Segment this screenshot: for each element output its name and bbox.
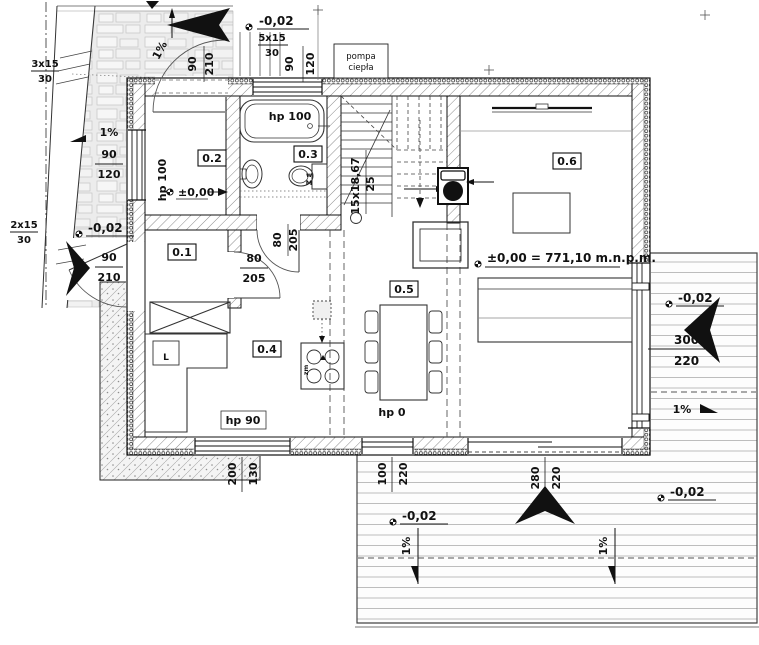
sill-dining: hp 0 xyxy=(378,406,406,419)
steps-left-height: 30 xyxy=(17,235,31,246)
dining-table xyxy=(365,305,442,400)
stair-flight-label: 15x18,67 xyxy=(349,157,362,214)
kitchen-counter xyxy=(145,334,227,432)
slope-left: 1% xyxy=(100,126,119,139)
dim-botdoor-width: 100 xyxy=(376,462,389,485)
dim-slider-height: 220 xyxy=(550,466,563,489)
steps-back-height: 30 xyxy=(265,48,279,59)
steps-topleft-count: 3x15 xyxy=(31,59,58,70)
dim-entrance-height: 210 xyxy=(98,271,121,284)
floor-plan-sheet: -0,02 5x15 30 90 120 pompa ciepła 1% 90 … xyxy=(0,0,759,645)
dim-topwin-height: 120 xyxy=(304,52,317,75)
north-tick-icon xyxy=(146,1,159,9)
tv-bench xyxy=(492,104,592,112)
level-main-note: ±0,00 = 771,10 m.n.p.m. xyxy=(487,251,656,265)
sill-bathtub: hp 100 xyxy=(269,110,312,123)
dim-door03-height: 205 xyxy=(287,229,300,252)
level-top: -0,02 xyxy=(259,14,294,28)
terrace-right-deck xyxy=(650,253,757,455)
heat-pump: pompa ciepła xyxy=(334,44,388,78)
flue-duct xyxy=(313,301,331,343)
fireplace xyxy=(438,168,494,204)
heat-pump-label-1: pompa xyxy=(346,52,375,62)
dim-door01-height: 205 xyxy=(243,272,266,285)
floor-plan-drawing: -0,02 5x15 30 90 120 pompa ciepła 1% 90 … xyxy=(0,0,759,645)
dim-leftwin-height: 120 xyxy=(98,168,121,181)
room-label-0-1: 0.1 xyxy=(172,246,192,259)
bath-ceiling-dotted xyxy=(240,191,326,197)
level-marker-icon xyxy=(390,519,396,525)
steps-back-count: 5x15 xyxy=(258,33,285,44)
room-label-0-6: 0.6 xyxy=(557,155,577,168)
level-marker-icon xyxy=(658,495,664,501)
wardrobe xyxy=(150,302,230,333)
steps-left-count: 2x15 xyxy=(10,220,37,231)
dishwasher-label: L xyxy=(163,353,169,363)
sill-kitchen: hp 90 xyxy=(226,414,261,427)
stair-direction-arrow-icon xyxy=(416,198,424,208)
sink-label: zm xyxy=(302,364,310,375)
walls xyxy=(69,40,651,456)
structural-dashed-lines xyxy=(330,223,460,437)
wall-openings xyxy=(126,76,651,456)
bath-sink xyxy=(240,160,262,188)
level-marker-icon xyxy=(246,24,252,30)
stair-width-label: 25 xyxy=(364,176,377,191)
level-marker-icon xyxy=(475,261,481,267)
slope-ramp-left-icon xyxy=(70,135,86,142)
level-left: -0,02 xyxy=(88,221,123,235)
steps-topleft-height: 30 xyxy=(38,74,52,85)
room-label-0-3: 0.3 xyxy=(298,148,318,161)
slope-terrace-right: 1% xyxy=(673,403,692,416)
dim-entrance-width: 90 xyxy=(101,251,117,264)
site-area xyxy=(42,1,260,480)
interior-walls xyxy=(145,96,460,308)
coffee-table xyxy=(513,193,570,233)
ramp-edge-outer xyxy=(42,6,57,308)
level-terrace-bottom-1: -0,02 xyxy=(402,509,437,523)
dim-topdoor-width: 90 xyxy=(186,56,199,72)
exterior-steps-top-left xyxy=(56,51,92,84)
dim-door01-width: 80 xyxy=(246,252,262,265)
level-marker-icon xyxy=(666,301,672,307)
level-room02: ±0,00 xyxy=(178,186,215,199)
dim-rightwin-height: 220 xyxy=(674,354,699,368)
slope-terrace-bottom-2: 1% xyxy=(597,537,610,556)
wc-label-m: M xyxy=(306,179,312,187)
dim-botwin-width: 200 xyxy=(226,462,239,485)
dim-botdoor-height: 220 xyxy=(397,462,410,485)
level-marker-icon xyxy=(76,231,82,237)
level-marker-icon xyxy=(167,189,173,195)
dim-botwin-height: 130 xyxy=(247,462,260,485)
dim-topdoor-height: 210 xyxy=(203,52,216,75)
room-label-0-5: 0.5 xyxy=(394,283,414,296)
room-label-0-4: 0.4 xyxy=(257,343,277,356)
sofa xyxy=(478,278,632,342)
dim-door03-width: 80 xyxy=(271,232,284,248)
room-label-0-2: 0.2 xyxy=(202,152,222,165)
dim-leftwin-width: 90 xyxy=(101,148,117,161)
dim-slider-width: 280 xyxy=(529,466,542,489)
heat-pump-label-2: ciepła xyxy=(348,63,373,73)
wc-label-w: w xyxy=(306,171,312,179)
slope-terrace-bottom-1: 1% xyxy=(400,537,413,556)
level-terrace-bottom-2: -0,02 xyxy=(670,485,705,499)
sill-room02: hp 100 xyxy=(156,158,169,201)
dim-topwin-width: 90 xyxy=(283,56,296,72)
level-terrace-right: -0,02 xyxy=(678,291,713,305)
